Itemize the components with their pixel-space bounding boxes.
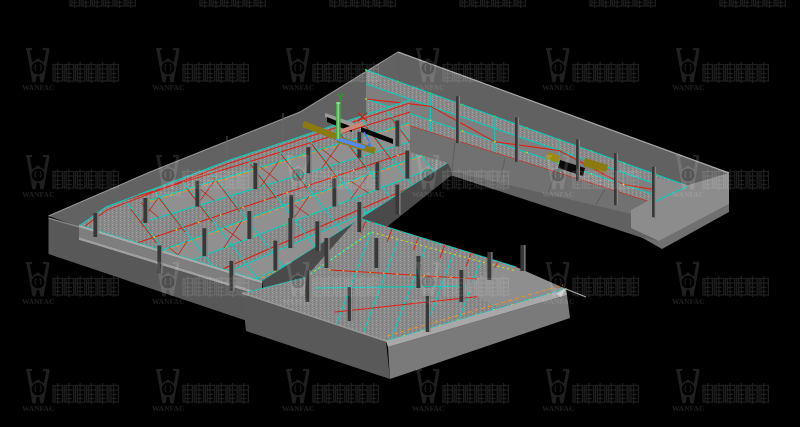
svg-text:WANFAC: WANFAC (542, 404, 574, 413)
svg-text:WANFAC: WANFAC (152, 190, 184, 199)
svg-text:WANFAC: WANFAC (282, 404, 314, 413)
svg-text:WANFAC: WANFAC (672, 404, 704, 413)
svg-text:WANFAC: WANFAC (542, 297, 574, 306)
svg-text:WANFAC: WANFAC (672, 83, 704, 92)
svg-text:WANFAC: WANFAC (282, 83, 314, 92)
svg-text:WANFAC: WANFAC (152, 83, 184, 92)
svg-text:WANFAC: WANFAC (22, 404, 54, 413)
svg-text:WANFAC: WANFAC (282, 297, 314, 306)
svg-text:WANFAC: WANFAC (282, 190, 314, 199)
svg-text:WANFAC: WANFAC (412, 297, 444, 306)
svg-text:WANFAC: WANFAC (672, 297, 704, 306)
svg-text:WANFAC: WANFAC (412, 83, 444, 92)
svg-text:WANFAC: WANFAC (22, 83, 54, 92)
svg-text:WANFAC: WANFAC (22, 297, 54, 306)
svg-text:WANFAC: WANFAC (412, 190, 444, 199)
svg-text:WANFAC: WANFAC (542, 190, 574, 199)
svg-text:WANFAC: WANFAC (412, 404, 444, 413)
svg-text:WANFAC: WANFAC (152, 404, 184, 413)
svg-text:WANFAC: WANFAC (672, 190, 704, 199)
svg-text:WANFAC: WANFAC (542, 83, 574, 92)
svg-text:WANFAC: WANFAC (22, 190, 54, 199)
svg-text:WANFAC: WANFAC (152, 297, 184, 306)
